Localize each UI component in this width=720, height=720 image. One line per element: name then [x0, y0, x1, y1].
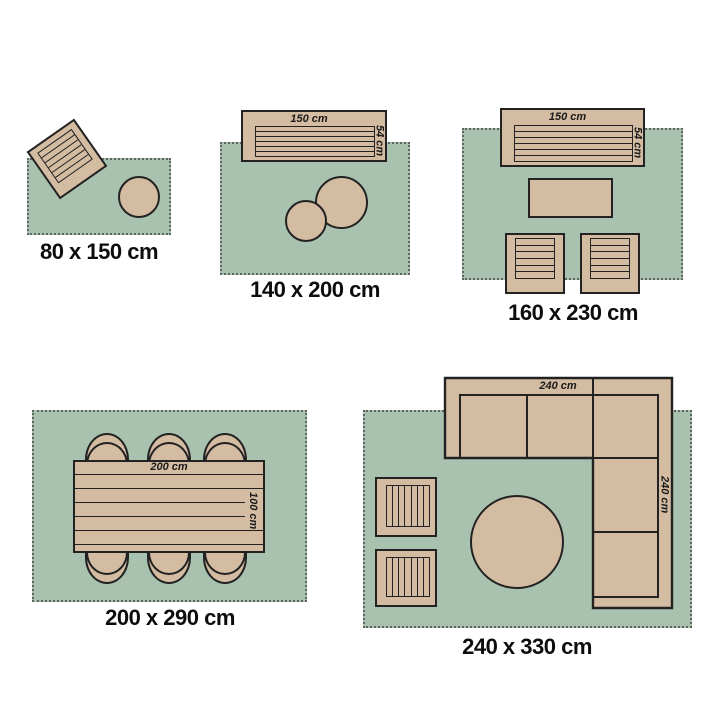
round-side-table-icon	[118, 176, 160, 218]
stool-top-icon	[375, 477, 437, 537]
sofa-cushions	[255, 126, 375, 157]
corner-sofa-depth-label: 240 cm	[657, 452, 672, 537]
size-label-160x230: 160 x 230 cm	[483, 300, 663, 326]
stool-bottom-icon	[375, 549, 437, 607]
sofa-icon: 150 cm 54 cm	[500, 108, 645, 167]
armchair-right-icon	[580, 233, 640, 294]
coffee-table-icon	[528, 178, 613, 218]
sofa-cushions	[514, 125, 633, 162]
stool-slats	[386, 485, 430, 527]
table-depth-label: 100 cm	[246, 488, 260, 534]
round-table-small-icon	[285, 200, 327, 242]
sofa-icon: 150 cm 54 cm	[241, 110, 387, 162]
dining-table-icon: 200 cm 100 cm	[73, 460, 265, 553]
rug-size-guide: 80 x 150 cm 150 cm 54 cm 140 x 200 cm 15…	[0, 0, 720, 720]
armchair-left-icon	[505, 233, 565, 294]
corner-sofa-width-label: 240 cm	[488, 380, 628, 392]
sofa-width-label: 150 cm	[502, 111, 633, 123]
size-label-80x150: 80 x 150 cm	[9, 239, 189, 265]
stool-slats	[386, 557, 430, 597]
corner-sofa-icon	[443, 376, 675, 611]
table-width-label: 200 cm	[75, 461, 263, 473]
size-label-200x290: 200 x 290 cm	[80, 605, 260, 631]
size-label-240x330: 240 x 330 cm	[437, 634, 617, 660]
armchair-slats	[37, 129, 93, 183]
armchair-slats	[515, 238, 555, 279]
sofa-width-label: 150 cm	[243, 113, 375, 125]
armchair-slats	[590, 238, 630, 279]
size-label-140x200: 140 x 200 cm	[225, 277, 405, 303]
